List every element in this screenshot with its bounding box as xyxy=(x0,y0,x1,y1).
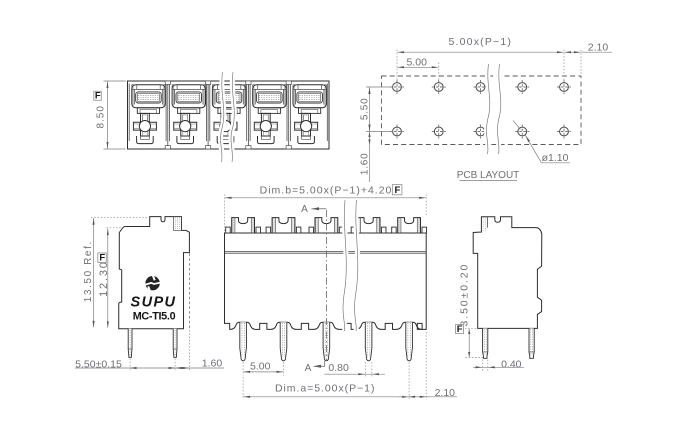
svg-text:0.40: 0.40 xyxy=(501,359,522,371)
svg-text:12.30: 12.30 xyxy=(98,260,110,297)
svg-text:SUPU: SUPU xyxy=(131,295,177,311)
svg-text:0.80: 0.80 xyxy=(328,362,349,374)
svg-text:A: A xyxy=(305,363,312,374)
svg-text:Dim.b=5.00x(P−1)+4.20: Dim.b=5.00x(P−1)+4.20 xyxy=(260,184,393,196)
svg-text:5.50±0.15: 5.50±0.15 xyxy=(75,358,122,370)
svg-text:2.10: 2.10 xyxy=(588,42,609,54)
svg-text:5.00x(P−1): 5.00x(P−1) xyxy=(448,36,512,48)
svg-text:ø1.10: ø1.10 xyxy=(542,152,569,164)
svg-text:13.50 Ref.: 13.50 Ref. xyxy=(83,240,94,302)
svg-text:F: F xyxy=(99,253,105,264)
svg-text:Dim.a=5.00x(P−1): Dim.a=5.00x(P−1) xyxy=(275,382,375,394)
svg-text:A: A xyxy=(301,204,308,215)
svg-text:F: F xyxy=(457,324,463,335)
svg-text:5.50: 5.50 xyxy=(360,97,371,120)
svg-text:2.10: 2.10 xyxy=(435,387,456,399)
svg-text:8.50: 8.50 xyxy=(95,105,106,128)
svg-text:MC-TI5.0: MC-TI5.0 xyxy=(133,311,176,323)
svg-text:F: F xyxy=(394,185,400,196)
svg-text:3.50±0.20: 3.50±0.20 xyxy=(458,263,470,327)
svg-text:1.60: 1.60 xyxy=(202,358,223,370)
svg-text:PCB LAYOUT: PCB LAYOUT xyxy=(457,170,520,181)
svg-text:5.00: 5.00 xyxy=(250,361,271,373)
svg-text:5.00: 5.00 xyxy=(406,57,427,69)
svg-text:1.60: 1.60 xyxy=(359,152,370,175)
svg-text:F: F xyxy=(95,91,101,102)
